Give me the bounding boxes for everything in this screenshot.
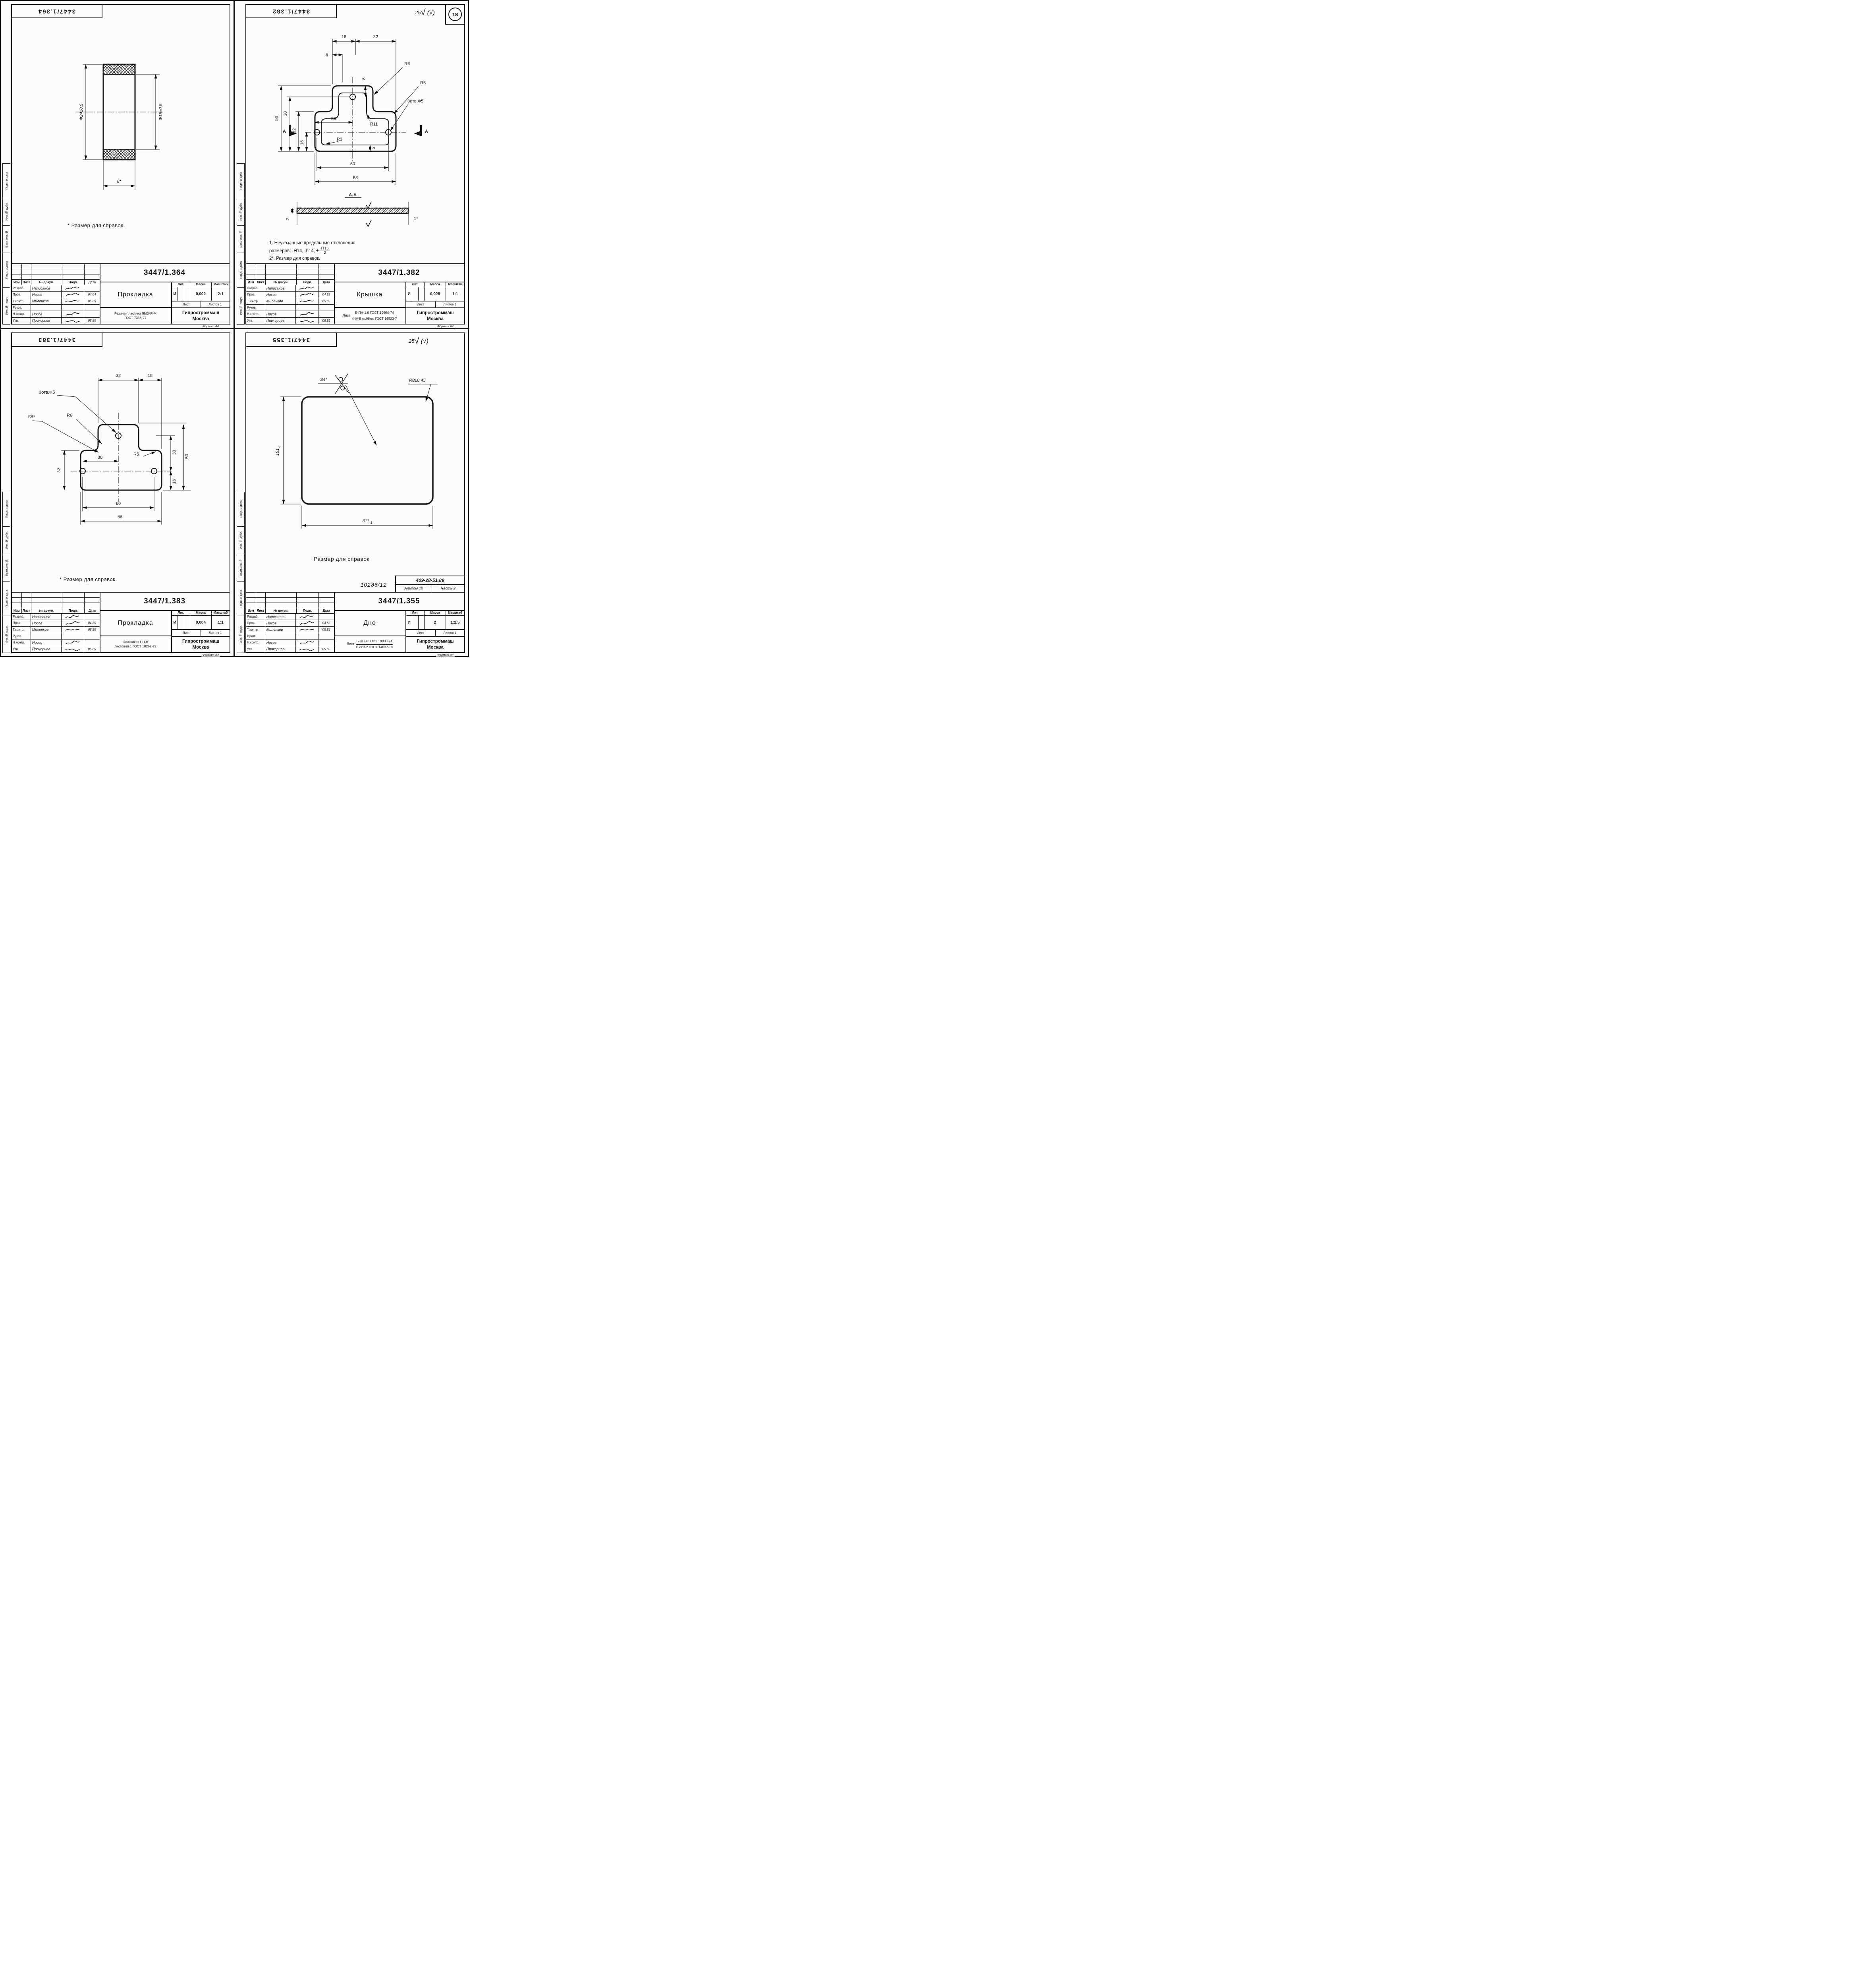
row-role: Утв. bbox=[246, 318, 265, 324]
mass-label: Масса bbox=[190, 282, 212, 287]
row-date bbox=[318, 311, 334, 317]
lit-mass-scale: Лит.МассаМасштаб И21:2,5 ЛистЛистов 1 Ги… bbox=[405, 610, 464, 652]
row-role: Н.контр. bbox=[246, 311, 265, 317]
margin-cell: Подп. и дата bbox=[237, 492, 245, 526]
inverted-doc-number-stamp: 3447/1.382 bbox=[246, 5, 337, 18]
part-outline bbox=[302, 397, 433, 504]
sheet-gasket-1383: Подп. и дата Инв.№ дубл. Взам.инв.№ Подп… bbox=[0, 328, 234, 657]
holes-callout: 3отв.Ф5 bbox=[407, 99, 423, 104]
signature-squiggle bbox=[65, 621, 81, 626]
col-data: Дата bbox=[319, 280, 334, 285]
margin-cell: Инв.№ дубл. bbox=[2, 526, 10, 554]
margin-cell: Инв.№ подл. bbox=[237, 616, 245, 653]
stamp-number: 3447/1.382 bbox=[272, 8, 310, 15]
check-icon: √ bbox=[421, 10, 425, 15]
margin-cell: Подп. и дата bbox=[2, 581, 10, 616]
revision-table: Изм Лист № докум. Подп. Дата Разраб.Напи… bbox=[246, 264, 335, 324]
org-line1: Гипростроммаш bbox=[182, 639, 219, 644]
mass-value: 0,028 bbox=[425, 287, 446, 301]
check-icon: √ bbox=[414, 338, 419, 344]
row-role: Утв. bbox=[246, 646, 265, 652]
dimension-lines bbox=[61, 378, 191, 525]
signature-squiggle bbox=[65, 614, 81, 619]
dimension-lines bbox=[280, 397, 433, 529]
row-date bbox=[318, 614, 334, 620]
mass-value: 0,002 bbox=[190, 287, 212, 301]
dim-width: 311-1 bbox=[362, 519, 372, 525]
note-line: 1. Неуказанные предельные отклонения bbox=[269, 240, 444, 247]
col-data: Дата bbox=[319, 608, 334, 613]
format-label: Формат А4 bbox=[436, 653, 455, 657]
inverted-doc-number-stamp: 3447/1.364 bbox=[12, 5, 102, 18]
margin-label: Инв.№ подл. bbox=[5, 625, 8, 643]
signature-squiggle bbox=[65, 627, 81, 632]
radius-label: R8±0,45 bbox=[409, 378, 426, 383]
signature-squiggle bbox=[65, 640, 81, 645]
lit-value: И bbox=[172, 287, 178, 301]
row-role: Пров. bbox=[246, 620, 265, 626]
material-line2: 4-IV-В ст.08кп. ГОСТ 16523-7 bbox=[352, 317, 397, 321]
col-doc: № докум. bbox=[31, 280, 62, 285]
dim-label: 30 bbox=[331, 116, 336, 121]
drawing-frame: 3447/1.364 bbox=[11, 4, 230, 325]
row-date bbox=[84, 639, 100, 645]
part-outline bbox=[314, 86, 396, 151]
row-role: Пров. bbox=[246, 292, 265, 298]
col-podp: Подп. bbox=[62, 608, 85, 613]
col-izm: Изм bbox=[12, 608, 22, 613]
note-line: размеров: -Н14, -h14, ±IT162 bbox=[269, 247, 444, 255]
margin-cell: Инв.№ подл. bbox=[2, 616, 10, 653]
signature-squiggle bbox=[299, 614, 315, 619]
margin-cell: Подп. и дата bbox=[2, 163, 10, 198]
dim-main: 311 bbox=[362, 519, 369, 524]
margin-strip: Подп. и дата Инв.№ дубл. Взам.инв.№ Подп… bbox=[2, 492, 10, 653]
row-date: 04.85 bbox=[84, 620, 100, 626]
bottom-plate-drawing: S4* R8±0,45 151-1 311-1 bbox=[250, 357, 455, 540]
dim-label: 50 bbox=[185, 454, 189, 459]
stamp-number: 3447/1.355 bbox=[272, 336, 310, 343]
row-name: Прохорцев bbox=[265, 318, 296, 324]
mass-label: Масса bbox=[190, 610, 212, 615]
col-doc: № докум. bbox=[31, 608, 62, 613]
part-name: Прокладка bbox=[100, 282, 171, 308]
row-date: 05.85 bbox=[84, 627, 100, 633]
margin-label: Подп. и дата bbox=[239, 500, 243, 518]
gasket-drawing: 3отв.Ф5 S6* R6 R5 32 18 32 30 30 16 50 6… bbox=[16, 357, 221, 564]
lit-mass-scale: Лит.МассаМасштаб И0,0041:1 ЛистЛистов 1 … bbox=[171, 610, 230, 652]
revision-table: Изм Лист № докум. Подп. Дата Разраб.Напи… bbox=[12, 593, 100, 652]
row-name: Написанов bbox=[31, 285, 62, 291]
margin-label: Подп. и дата bbox=[5, 590, 8, 607]
row-name: Написанов bbox=[265, 614, 296, 620]
dim-label: 32 bbox=[116, 373, 121, 378]
margin-cell: Подп. и дата bbox=[2, 253, 10, 287]
signature-squiggle bbox=[65, 286, 81, 291]
scanned-drawing-page: Подп. и дата Инв.№ дубл. Взам.инв.№ Подп… bbox=[0, 0, 469, 657]
row-role: Т.контр. bbox=[12, 627, 31, 633]
dim-label: 16 bbox=[172, 479, 177, 484]
row-role: Руков. bbox=[12, 305, 31, 311]
signature-squiggle bbox=[65, 312, 81, 317]
section-title: А-А bbox=[349, 193, 357, 197]
reference-designation-box: 409-28-51.89 Альбом 10 Часть 2 bbox=[395, 576, 464, 593]
centerlines bbox=[71, 413, 172, 502]
row-role: Н.контр. bbox=[12, 311, 31, 317]
section-view bbox=[292, 198, 408, 226]
row-role: Руков. bbox=[246, 305, 265, 311]
margin-label: Взам.инв.№ bbox=[239, 230, 243, 247]
title-block-right: 3447/1.382 Крышка Лист Б-ПН-1,0 ГОСТ 199… bbox=[334, 264, 464, 324]
roughness-value: 25 bbox=[415, 10, 421, 15]
scale-label: Масштаб bbox=[212, 282, 230, 287]
title-block: Изм Лист № докум. Подп. Дата Разраб.Напи… bbox=[246, 263, 464, 324]
margin-cell: Взам.инв.№ bbox=[237, 554, 245, 581]
margin-cell: Инв.№ подл. bbox=[2, 287, 10, 325]
row-role: Т.контр. bbox=[12, 298, 31, 304]
row-role: Пров. bbox=[12, 620, 31, 626]
scale-value: 2:1 bbox=[212, 287, 230, 301]
stamp-number: 3447/1.383 bbox=[38, 336, 75, 343]
title-block: Изм Лист № докум. Подп. Дата Разраб.Напи… bbox=[12, 263, 230, 324]
row-name: Миленков bbox=[265, 298, 296, 304]
radius-label: R5 bbox=[133, 452, 139, 457]
margin-label: Инв.№ дубл. bbox=[239, 203, 243, 220]
col-list: Лист bbox=[256, 608, 266, 613]
row-date: 04.85 bbox=[318, 292, 334, 298]
margin-cell: Инв.№ подл. bbox=[237, 287, 245, 325]
row-role: Разраб. bbox=[246, 614, 265, 620]
title-block-right: 3447/1.364 Прокладка Резина-пластина 8МБ… bbox=[100, 264, 230, 324]
roughness-paren: (√) bbox=[421, 338, 428, 345]
dim-label: 68 bbox=[353, 176, 358, 180]
signature-squiggle bbox=[299, 299, 315, 303]
gasket-section-drawing: Ф24±0,5 Ф19±0,5 8* bbox=[28, 52, 210, 211]
dim-label: 18 bbox=[342, 35, 346, 39]
margin-cell: Подп. и дата bbox=[237, 253, 245, 287]
row-name: Прохорцев bbox=[265, 646, 296, 652]
row-date: 05.85 bbox=[84, 646, 100, 652]
title-block: Изм Лист № докум. Подп. Дата Разраб.Напи… bbox=[12, 592, 230, 652]
row-date: 05.85 bbox=[318, 646, 334, 652]
scale-label: Масштаб bbox=[446, 282, 464, 287]
row-date: 04.85 bbox=[318, 620, 334, 626]
col-data: Дата bbox=[85, 280, 100, 285]
reference-note: * Размер для справок. bbox=[60, 576, 117, 582]
margin-strip: Подп. и дата Инв.№ дубл. Взам.инв.№ Подп… bbox=[237, 163, 245, 325]
dim-sub: -1 bbox=[369, 521, 372, 525]
surface-roughness-mark: 25√(√) bbox=[409, 338, 428, 345]
signature-squiggle bbox=[299, 286, 315, 291]
col-doc: № докум. bbox=[266, 608, 297, 613]
row-name: Миленков bbox=[31, 627, 62, 633]
mass-value: 2 bbox=[425, 616, 446, 629]
margin-cell: Инв.№ дубл. bbox=[2, 198, 10, 225]
dim-label: 32 bbox=[373, 35, 378, 39]
material-prefix: Лист bbox=[343, 313, 351, 318]
margin-strip: Подп. и дата Инв.№ дубл. Взам.инв.№ Подп… bbox=[2, 163, 10, 325]
handwritten-inventory-number: 10286/12 bbox=[361, 582, 387, 588]
col-doc: № докум. bbox=[266, 280, 297, 285]
org-line1: Гипростроммаш bbox=[417, 310, 454, 316]
part-name: Дно bbox=[334, 610, 405, 636]
dim-sub: -1 bbox=[277, 445, 281, 448]
material-line2: листовой 1 ГОСТ 18269-72 bbox=[114, 644, 156, 649]
row-date: 05.85 bbox=[84, 298, 100, 304]
col-izm: Изм bbox=[246, 608, 256, 613]
margin-cell: Подп. и дата bbox=[237, 581, 245, 616]
sheets-count: Листов 1 bbox=[201, 301, 230, 307]
stamp-number: 3447/1.364 bbox=[38, 8, 75, 15]
dim-label: 50 bbox=[274, 116, 279, 121]
signature-squiggle bbox=[299, 647, 315, 651]
row-date bbox=[318, 285, 334, 291]
doc-number: 3447/1.383 bbox=[100, 593, 230, 611]
reference-note: * Размер для справок. bbox=[68, 222, 125, 228]
format-label: Формат А4 bbox=[436, 325, 455, 328]
dim-label: 30 bbox=[98, 455, 102, 460]
radius-label: R6 bbox=[404, 62, 410, 66]
sheet-label: Лист bbox=[172, 301, 201, 307]
row-date bbox=[84, 311, 100, 317]
material-line1: Б-ПН-4 ГОСТ 19903-74 bbox=[356, 639, 393, 644]
col-list: Лист bbox=[256, 280, 266, 285]
col-podp: Подп. bbox=[62, 280, 85, 285]
dim-label: 8 bbox=[362, 77, 367, 80]
org-line2: Москва bbox=[427, 316, 444, 322]
org-line1: Гипростроммаш bbox=[182, 310, 219, 316]
title-block-right: 3447/1.383 Прокладка Пластикат ПП-В лист… bbox=[100, 593, 230, 652]
row-role: Руков. bbox=[246, 633, 265, 639]
col-list: Лист bbox=[22, 608, 32, 613]
part-label: Часть 2 bbox=[432, 585, 464, 592]
note-line: 2*. Размер для справок. bbox=[269, 255, 444, 262]
lit-label: Лит. bbox=[172, 610, 190, 615]
material-line1: Резина-пластина 8МБ-Я-М bbox=[114, 311, 156, 316]
dim-outer-diameter: Ф24±0,5 bbox=[79, 103, 84, 120]
row-role: Т.контр. bbox=[246, 298, 265, 304]
scale-value: 1:1 bbox=[446, 287, 464, 301]
row-role: Т.контр. bbox=[246, 627, 265, 633]
col-list: Лист bbox=[22, 280, 32, 285]
dim-label: 2 bbox=[286, 218, 290, 220]
dim-label: 60 bbox=[116, 501, 121, 506]
margin-label: Подп. и дата bbox=[5, 500, 8, 518]
row-name: Написанов bbox=[265, 285, 296, 291]
material-spec: Лист Б-ПН-1,0 ГОСТ 19904-74 4-IV-В ст.08… bbox=[334, 307, 405, 324]
row-role: Разраб. bbox=[246, 285, 265, 291]
dim-label: 1* bbox=[414, 216, 418, 221]
leader-lines bbox=[318, 374, 438, 445]
row-name: Носов bbox=[31, 620, 62, 626]
radius-label: R11 bbox=[370, 122, 378, 127]
part-name: Крышка bbox=[334, 282, 405, 308]
thickness-label: S6* bbox=[28, 415, 35, 419]
organization: ГипростроммашМосква bbox=[406, 308, 464, 324]
material-line1: Пластикат ПП-В bbox=[114, 640, 156, 644]
drawing-frame: 3447/1.383 bbox=[11, 332, 230, 653]
row-role: Утв. bbox=[12, 646, 31, 652]
row-role: Н.контр. bbox=[246, 639, 265, 645]
radius-value: R8±0,45 bbox=[409, 378, 426, 383]
signature-squiggle bbox=[65, 318, 81, 323]
sheet-bottom-1355: Подп. и дата Инв.№ дубл. Взам.инв.№ Подп… bbox=[234, 328, 469, 657]
row-date: 05.85 bbox=[318, 298, 334, 304]
doc-number: 3447/1.355 bbox=[334, 593, 464, 611]
row-date bbox=[84, 614, 100, 620]
lit-mass-scale: Лит.МассаМасштаб И0,0281:1 ЛистЛистов 1 … bbox=[405, 282, 464, 324]
scale-label: Масштаб bbox=[212, 610, 230, 615]
margin-cell: Инв.№ дубл. bbox=[237, 526, 245, 554]
margin-label: Инв.№ подл. bbox=[239, 297, 243, 315]
margin-label: Подп. и дата bbox=[239, 590, 243, 607]
dim-label: 18 bbox=[148, 373, 152, 378]
org-line2: Москва bbox=[427, 645, 444, 650]
tolerance-fraction: IT162 bbox=[320, 247, 330, 255]
col-izm: Изм bbox=[12, 280, 22, 285]
material-line2: В ст.3-2 ГОСТ 14637-79 bbox=[356, 645, 393, 649]
lit-mass-scale: Лит.МассаМасштаб И0,0022:1 ЛистЛистов 1 … bbox=[171, 282, 230, 324]
material-spec: Пластикат ПП-В листовой 1 ГОСТ 18269-72 bbox=[100, 636, 171, 652]
row-name: Носов bbox=[31, 292, 62, 298]
margin-label: Инв.№ подл. bbox=[5, 297, 8, 315]
mass-value: 0,004 bbox=[190, 616, 212, 629]
col-podp: Подп. bbox=[297, 608, 319, 613]
margin-label: Подп. и дата bbox=[5, 261, 8, 279]
radius-label: R6 bbox=[67, 413, 72, 418]
row-role: Руков. bbox=[12, 633, 31, 639]
technical-notes: 1. Неуказанные предельные отклонения раз… bbox=[269, 240, 444, 262]
dim-width: 8* bbox=[117, 179, 122, 184]
margin-cell: Инв.№ дубл. bbox=[237, 198, 245, 225]
signature-squiggle bbox=[65, 292, 81, 297]
row-name: Прохорцев bbox=[31, 646, 62, 652]
roughness-paren: (√) bbox=[427, 10, 435, 17]
row-date bbox=[318, 639, 334, 645]
lit-value: И bbox=[172, 616, 178, 629]
row-name: Носов bbox=[265, 311, 296, 317]
thickness-label: S4* bbox=[320, 377, 327, 382]
section-cut-marks bbox=[290, 125, 421, 136]
scale-label: Масштаб bbox=[446, 610, 464, 615]
margin-label: Взам.инв.№ bbox=[5, 559, 8, 576]
margin-cell: Взам.инв.№ bbox=[2, 225, 10, 253]
organization: ГипростроммашМосква bbox=[172, 637, 230, 652]
lit-value: И bbox=[406, 616, 412, 629]
sheet-cover-1382: Подп. и дата Инв.№ дубл. Взам.инв.№ Подп… bbox=[234, 0, 469, 328]
title-block-right: 3447/1.355 Дно Лист Б-ПН-4 ГОСТ 19903-74… bbox=[334, 593, 464, 652]
format-label: Формат А4 bbox=[201, 325, 220, 328]
row-name: Миленков bbox=[265, 627, 296, 633]
row-date: 04.84 bbox=[84, 292, 100, 298]
signature-squiggle bbox=[299, 312, 315, 317]
dim-label: 30 bbox=[172, 450, 177, 455]
lit-value: И bbox=[406, 287, 412, 301]
fraction-bottom: 2 bbox=[320, 251, 330, 255]
col-podp: Подп. bbox=[297, 280, 319, 285]
row-date: 05.85 bbox=[84, 318, 100, 324]
doc-number: 3447/1.382 bbox=[334, 264, 464, 282]
cover-drawing: 8 18 32 8 50 30 32 16 30 5 R6 R5 R11 R3 … bbox=[250, 18, 455, 241]
row-date: 06.85 bbox=[318, 318, 334, 324]
margin-cell: Взам.инв.№ bbox=[2, 554, 10, 581]
row-date bbox=[84, 285, 100, 291]
material-spec: Лист Б-ПН-4 ГОСТ 19903-74 В ст.3-2 ГОСТ … bbox=[334, 636, 405, 652]
dim-label: 32 bbox=[292, 128, 297, 133]
row-role: Утв. bbox=[12, 318, 31, 324]
part-name: Прокладка bbox=[100, 610, 171, 636]
organization: ГипростроммашМосква bbox=[172, 308, 230, 324]
dim-label: 16 bbox=[300, 140, 305, 145]
section-letter: А bbox=[283, 129, 286, 134]
row-role: Разраб. bbox=[12, 614, 31, 620]
dim-label: 8 bbox=[326, 53, 328, 58]
mass-label: Масса bbox=[425, 282, 446, 287]
dim-label: 68 bbox=[118, 515, 122, 520]
reference-note: Размер для справок bbox=[314, 556, 369, 562]
margin-cell: Взам.инв.№ bbox=[237, 225, 245, 253]
roughness-value: 25 bbox=[409, 338, 414, 344]
album-label: Альбом 10 bbox=[396, 585, 432, 592]
sheets-count: Листов 1 bbox=[436, 630, 465, 636]
lit-label: Лит. bbox=[406, 282, 425, 287]
mass-label: Масса bbox=[425, 610, 446, 615]
row-role: Разраб. bbox=[12, 285, 31, 291]
row-name: Носов bbox=[265, 639, 296, 645]
section-letter: А bbox=[425, 129, 428, 134]
revision-table: Изм Лист № докум. Подп. Дата Разраб.Напи… bbox=[246, 593, 335, 652]
col-data: Дата bbox=[85, 608, 100, 613]
organization: ГипростроммашМосква bbox=[406, 637, 464, 652]
drawing-frame: 3447/1.355 25√(√) bbox=[245, 332, 465, 653]
material-line1: Б-ПН-1,0 ГОСТ 19904-74 bbox=[352, 311, 397, 316]
row-role: Пров. bbox=[12, 292, 31, 298]
radius-label: R3 bbox=[337, 137, 342, 142]
centerlines bbox=[305, 77, 406, 162]
row-name: Носов bbox=[31, 639, 62, 645]
radius-label: R5 bbox=[420, 81, 426, 85]
margin-label: Инв.№ дубл. bbox=[5, 531, 8, 549]
signature-squiggle bbox=[65, 299, 81, 303]
margin-label: Инв.№ дубл. bbox=[239, 531, 243, 549]
margin-cell: Подп. и дата bbox=[2, 492, 10, 526]
lit-label: Лит. bbox=[406, 610, 425, 615]
material-prefix: Лист bbox=[347, 642, 355, 647]
material-line2: ГОСТ 7338-77 bbox=[114, 316, 156, 320]
margin-label: Подп. и дата bbox=[239, 172, 243, 189]
row-name: Миленков bbox=[31, 298, 62, 304]
dimension-lines bbox=[83, 64, 160, 190]
signature-squiggle bbox=[299, 627, 315, 632]
org-line1: Гипростроммаш bbox=[417, 639, 454, 644]
signature-squiggle bbox=[299, 292, 315, 297]
row-name: Носов bbox=[265, 620, 296, 626]
margin-label: Подп. и дата bbox=[239, 261, 243, 279]
org-line2: Москва bbox=[193, 316, 209, 322]
inverted-doc-number-stamp: 3447/1.355 bbox=[246, 333, 337, 347]
margin-label: Инв.№ дубл. bbox=[5, 203, 8, 220]
row-name: Прохорцев bbox=[31, 318, 62, 324]
margin-label: Взам.инв.№ bbox=[239, 559, 243, 576]
col-izm: Изм bbox=[246, 280, 256, 285]
lit-label: Лит. bbox=[172, 282, 190, 287]
sheet-label: Лист bbox=[406, 301, 436, 307]
reference-code: 409-28-51.89 bbox=[396, 576, 464, 585]
sheets-count: Листов 1 bbox=[201, 630, 230, 636]
dim-label: 60 bbox=[350, 162, 355, 166]
margin-label: Инв.№ подл. bbox=[239, 625, 243, 643]
signature-squiggle bbox=[299, 621, 315, 626]
